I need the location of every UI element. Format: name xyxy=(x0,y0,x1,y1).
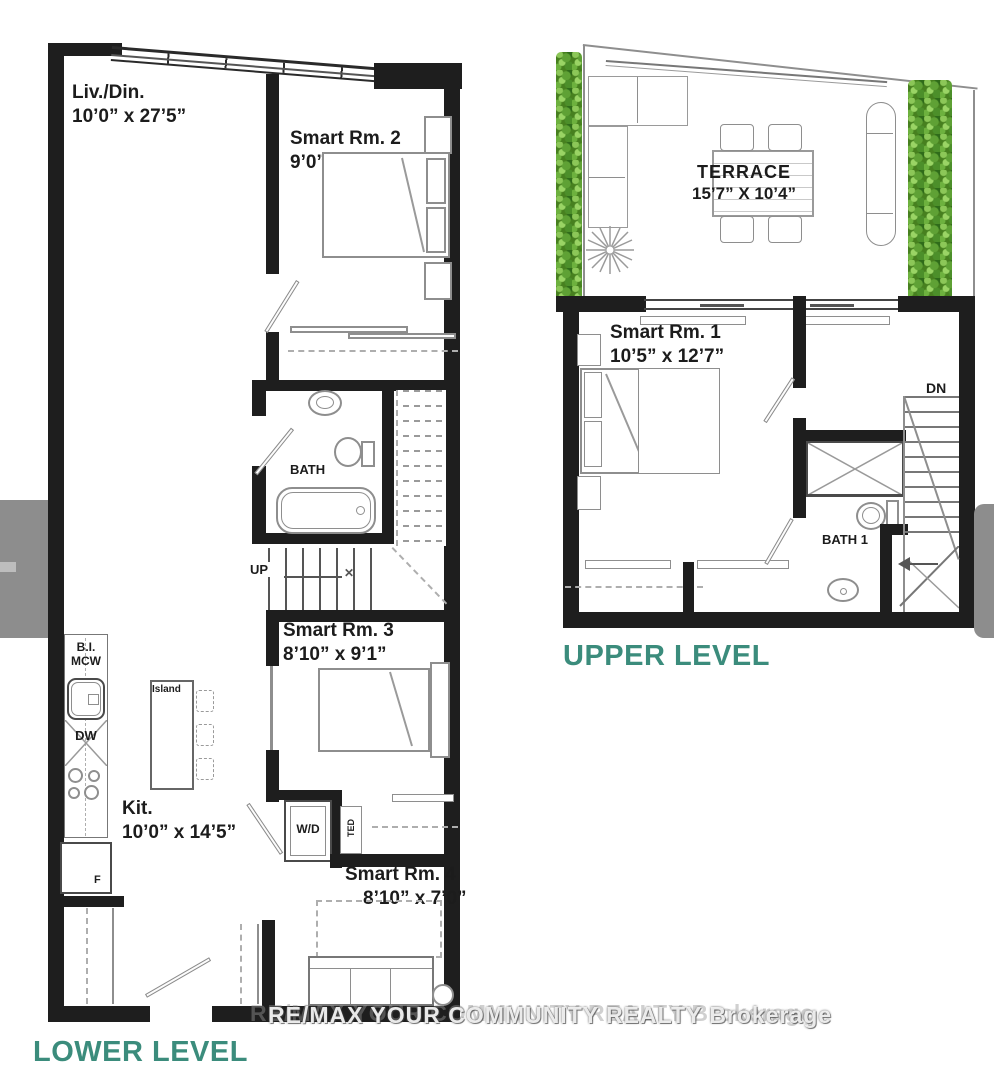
toilet-tank xyxy=(361,441,375,467)
door-handle-line xyxy=(810,304,854,307)
wall-segment xyxy=(683,562,694,612)
room-dim-liv-din: 10’0” x 27’5” xyxy=(72,106,186,129)
door-leaf-smart-rm-1 xyxy=(763,377,795,423)
bath-sink-bowl xyxy=(316,396,334,409)
door-leaf-bath-1 xyxy=(764,518,793,565)
closet-slider xyxy=(348,333,456,339)
bed-headboard xyxy=(430,662,450,758)
dining-chair xyxy=(720,216,754,243)
closet-dashed-line xyxy=(240,924,242,1004)
wall-segment xyxy=(262,920,275,1006)
entry-door-leaf xyxy=(145,957,211,997)
wall-segment xyxy=(48,1006,150,1022)
toilet-bowl-inner xyxy=(862,507,880,524)
wall-segment xyxy=(266,74,279,274)
carousel-prev-arrow-overlay[interactable] xyxy=(0,500,48,638)
outdoor-sectional-top xyxy=(588,76,688,126)
stairs-upper-flight-dashed xyxy=(396,390,446,546)
room-label-smart-rm-3: Smart Rm. 3 xyxy=(283,620,394,643)
hedge-left xyxy=(556,52,582,304)
window-sill xyxy=(798,316,890,325)
shower xyxy=(806,441,904,497)
closet-slider xyxy=(290,326,408,333)
shelf xyxy=(392,794,454,802)
closet-dashed-line xyxy=(288,350,458,352)
closet-dashed-line xyxy=(86,908,88,1004)
wall-segment xyxy=(793,296,806,388)
island-label: Island xyxy=(152,684,181,695)
sofa-cushion-line xyxy=(350,968,351,1004)
bi-mcw-label-line1: B.I. xyxy=(64,640,108,654)
wall-segment xyxy=(266,610,279,666)
pillow xyxy=(584,372,602,418)
dishwasher xyxy=(65,720,107,766)
dining-chair xyxy=(720,124,754,151)
lounge-line xyxy=(867,133,893,134)
stairs-dn-label: DN xyxy=(926,380,946,396)
bed-smart-rm-3 xyxy=(318,668,430,752)
dishwasher-label: DW xyxy=(64,728,108,743)
rug-dashed-outline xyxy=(316,900,442,958)
dishwasher-x-lines xyxy=(65,720,107,766)
night-table xyxy=(424,262,452,300)
room-label-smart-rm-1: Smart Rm. 1 xyxy=(610,322,721,345)
bed-fold-line xyxy=(320,670,428,750)
wall-segment xyxy=(252,380,266,416)
cushion-line xyxy=(589,177,625,178)
dining-chair xyxy=(768,216,802,243)
bi-mcw-label-line2: MCW xyxy=(64,654,108,668)
upper-level-title: UPPER LEVEL xyxy=(563,640,770,673)
cooktop-burner xyxy=(84,785,99,800)
wall-segment xyxy=(48,896,124,907)
room-label-terrace: TERRACE xyxy=(668,162,820,184)
stairs-up-label: UP xyxy=(248,562,270,577)
wall-segment xyxy=(806,430,906,441)
sliding-glass-door xyxy=(644,299,900,310)
toilet-bowl xyxy=(334,437,362,467)
floor-plan-canvas: Liv./Din. 10’0” x 27’5” Smart Rm. 2 9’0”… xyxy=(0,0,994,1077)
shower-x-lines xyxy=(808,443,902,495)
lower-level-title: LOWER LEVEL xyxy=(33,1036,248,1069)
closet-rod-line xyxy=(112,908,114,1004)
bed-sheet-line xyxy=(638,368,720,474)
kitchen-sink-faucet xyxy=(88,694,99,705)
shelf xyxy=(697,560,789,569)
room-label-liv-din: Liv./Din. xyxy=(72,82,144,105)
wall-segment xyxy=(266,332,279,382)
watermark-text: RE/MAX YOUR COMMUNITY REALTY Brokerage xyxy=(268,1002,832,1029)
shelf xyxy=(585,560,671,569)
room-label-smart-rm-4: Smart Rm. 4 xyxy=(345,864,456,887)
room-dim-terrace: 15’7” X 10’4” xyxy=(668,184,820,204)
lounge-chair xyxy=(866,102,896,246)
night-table xyxy=(424,116,452,154)
lounge-line xyxy=(867,213,893,214)
bathtub-drain xyxy=(356,506,365,515)
pillow xyxy=(584,421,602,467)
wall-segment xyxy=(252,533,394,544)
wall-segment xyxy=(252,466,266,538)
dashed-line xyxy=(372,826,458,828)
dining-chair xyxy=(768,124,802,151)
night-table xyxy=(577,476,601,510)
door-leaf-wd xyxy=(246,803,283,855)
stairs-lower-flight xyxy=(268,548,382,610)
wall-segment xyxy=(959,310,975,628)
island-stool xyxy=(196,724,214,746)
room-label-bath: BATH xyxy=(290,462,325,477)
prev-arrow-fragment xyxy=(0,562,16,572)
sofa-back-line xyxy=(310,968,432,969)
stairs-winder xyxy=(894,546,959,612)
washer-dryer-label: W/D xyxy=(288,822,328,836)
sofa-cushion-line xyxy=(390,968,391,1004)
plant-icon xyxy=(584,224,636,276)
carousel-next-arrow-overlay[interactable] xyxy=(974,504,994,638)
wall-segment xyxy=(880,524,892,612)
hedge-right xyxy=(908,80,952,308)
terrace-right-line xyxy=(973,90,975,296)
room-label-smart-rm-2: Smart Rm. 2 xyxy=(290,128,401,151)
bath1-sink-drain xyxy=(840,588,847,595)
pillow xyxy=(426,207,446,253)
island-stool xyxy=(196,690,214,712)
door-handle-line xyxy=(700,304,744,307)
pillow xyxy=(426,158,446,204)
island-stool xyxy=(196,758,214,780)
wall-segment xyxy=(793,418,806,518)
door-leaf-bath xyxy=(254,428,294,476)
stairs-winder-dashed-diagonal xyxy=(392,547,448,604)
kitchen-island xyxy=(150,680,194,790)
stairs-dn-treads xyxy=(905,396,959,546)
sofa-smart-rm-4 xyxy=(308,956,434,1006)
wall-segment xyxy=(563,612,975,628)
wall-segment xyxy=(382,386,394,544)
room-label-bath-1: BATH 1 xyxy=(822,532,868,547)
cooktop-burner xyxy=(88,770,100,782)
ted-label: TED xyxy=(346,808,356,848)
night-table xyxy=(577,334,601,366)
fridge-label: F xyxy=(94,874,101,886)
closet-rod-line xyxy=(257,924,259,1004)
room-dim-smart-rm-3: 8’10” x 9’1” xyxy=(283,644,387,667)
room-dim-kit: 10’0” x 14’5” xyxy=(122,822,236,845)
fridge xyxy=(60,842,112,894)
room-label-kit: Kit. xyxy=(122,798,153,821)
outdoor-sectional-side xyxy=(588,126,628,228)
stairs-direction-line xyxy=(284,576,342,578)
shower-curb-line xyxy=(806,494,904,497)
cushion-line xyxy=(637,77,638,123)
cooktop-burner xyxy=(68,787,80,799)
cooktop-burner xyxy=(68,768,83,783)
stairs-direction-mark: ✕ xyxy=(344,566,354,580)
room-dim-smart-rm-1: 10’5” x 12’7” xyxy=(610,346,724,369)
sliding-door-line xyxy=(270,666,273,750)
